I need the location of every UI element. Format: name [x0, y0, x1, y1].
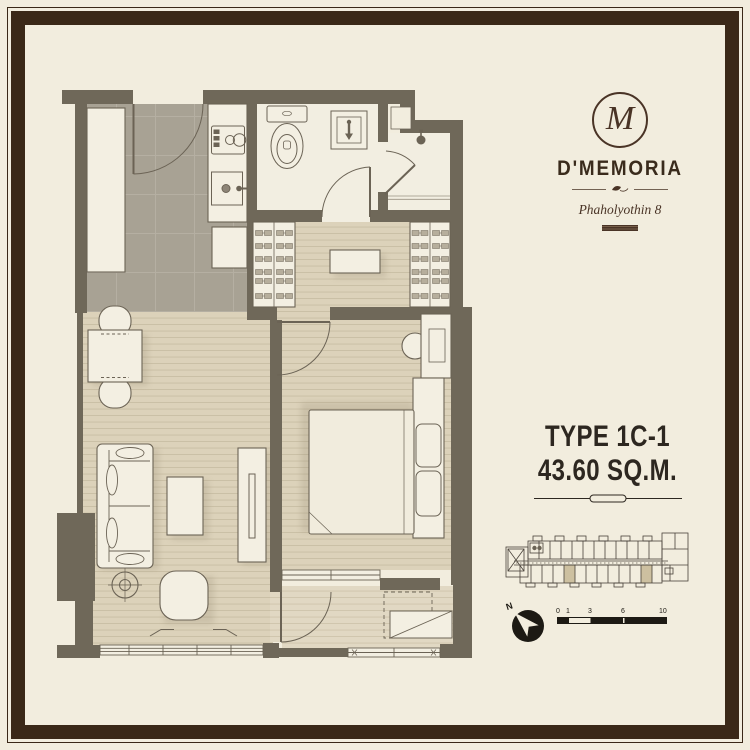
brand-bar-icon — [602, 225, 638, 231]
unit-area-label: 43.60 SQ.M. — [526, 454, 690, 488]
brand-ornament — [570, 184, 670, 194]
brand-name: D'MEMORIA — [553, 157, 688, 181]
ac-unit — [390, 611, 452, 638]
fridge — [212, 227, 247, 268]
floor-plan-page: { "branding": { "monogram": "M", "name":… — [0, 0, 750, 750]
wall-right-bedroom — [451, 307, 472, 585]
scale-label: 1 — [566, 608, 570, 615]
wall-kitchen-bath — [247, 104, 257, 222]
kitchen-cabinet — [87, 108, 125, 272]
floor-plan-svg — [55, 85, 487, 670]
scale-bar-labels: 0 1 3 6 10 — [557, 608, 667, 616]
tv — [249, 474, 255, 538]
wall-left-window-strip — [77, 313, 83, 515]
basin-icon — [331, 111, 367, 149]
compass: N — [502, 596, 548, 648]
scale-bar: 0 1 3 6 10 — [557, 608, 667, 624]
brand-subtitle: Phaholyothin 8 — [545, 202, 695, 218]
north-label: N — [505, 600, 514, 612]
kitchen-counter — [208, 104, 247, 222]
building-key-plan — [500, 519, 695, 591]
wall-left-upper — [75, 90, 87, 313]
monogram-letter: M — [606, 100, 634, 137]
column-left — [57, 513, 95, 601]
balcony-louver-window — [348, 648, 440, 657]
wall-living-bedroom — [270, 320, 282, 592]
branding-block: M D'MEMORIA Phaholyothin 8 — [545, 92, 695, 231]
wall-top — [62, 90, 415, 104]
lounge-chair — [160, 571, 208, 620]
coffee-table — [167, 477, 203, 535]
dining-table — [88, 330, 142, 382]
sofa — [97, 444, 153, 568]
floor-plan — [55, 85, 487, 670]
pillow — [416, 424, 441, 467]
tv-console — [238, 448, 266, 562]
key-plan-outline — [506, 533, 688, 587]
scale-label: 10 — [659, 608, 667, 615]
scale-bar-segments — [557, 617, 667, 624]
bed — [309, 410, 441, 534]
living-window — [100, 645, 263, 655]
scale-label: 6 — [621, 608, 625, 615]
bedroom-window — [282, 570, 380, 580]
unit-divider-icon — [528, 493, 688, 504]
pillow — [416, 471, 441, 516]
scale-label: 0 — [556, 608, 560, 615]
shower-floor — [388, 133, 450, 210]
unit-info-block: TYPE 1C-1 43.60 SQ.M. — [505, 420, 710, 509]
desk — [421, 314, 451, 378]
scale-label: 3 — [588, 608, 592, 615]
closet-island — [330, 250, 380, 273]
unit-type-label: TYPE 1C-1 — [526, 420, 690, 454]
brand-monogram: M — [592, 92, 648, 148]
duct-niche — [391, 107, 411, 129]
